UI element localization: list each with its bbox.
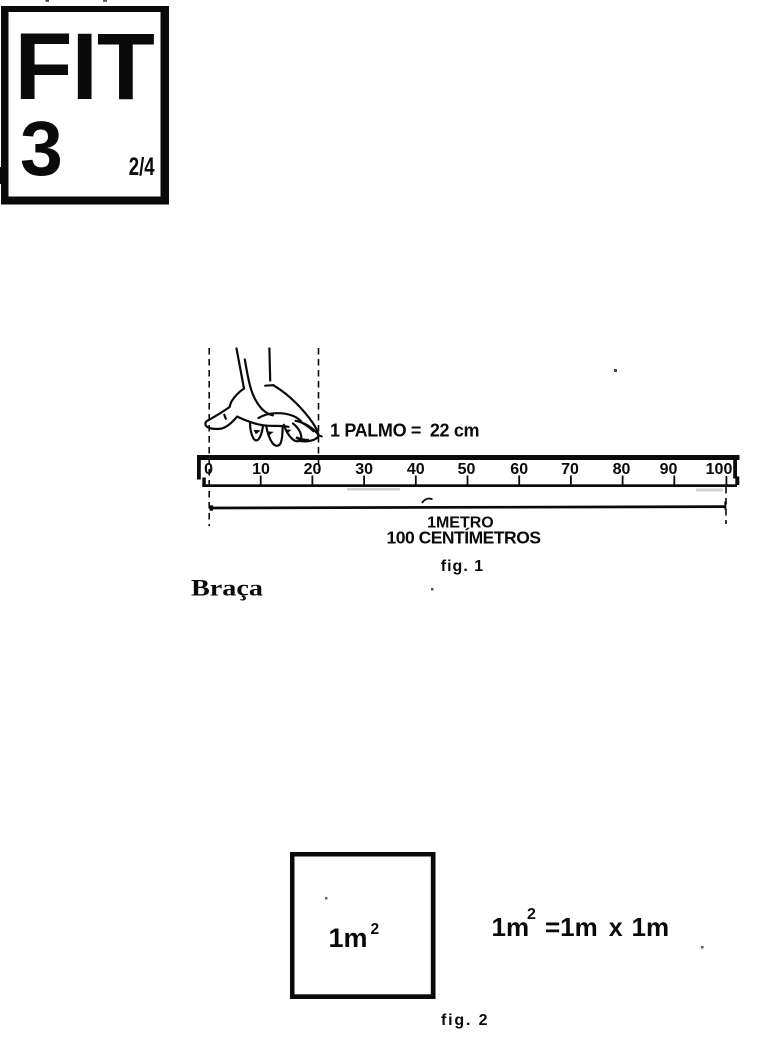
svg-text:70: 70: [561, 461, 579, 478]
svg-text:1m: 1m: [492, 912, 530, 942]
svg-text:2/4: 2/4: [129, 153, 155, 181]
svg-text:1 PALMO = 22 cm: 1 PALMO = 22 cm: [330, 421, 480, 441]
svg-text:40: 40: [407, 461, 425, 478]
svg-text:80: 80: [613, 461, 631, 478]
svg-text:fig. 1: fig. 1: [441, 558, 483, 575]
svg-text:90: 90: [660, 461, 678, 478]
svg-text:=1m: =1m: [545, 912, 598, 942]
svg-text:100: 100: [706, 461, 733, 478]
svg-text:Braça: Braça: [191, 576, 264, 601]
svg-text:20: 20: [304, 461, 322, 478]
svg-text:100 CENTÍMETROS: 100 CENTÍMETROS: [387, 527, 542, 548]
svg-text:fig. 2: fig. 2: [441, 1012, 488, 1029]
svg-text:1m: 1m: [632, 912, 670, 942]
svg-text:FIT: FIT: [15, 14, 155, 120]
svg-text:50: 50: [458, 461, 476, 478]
svg-text:2: 2: [527, 906, 536, 923]
svg-text:x: x: [609, 914, 623, 942]
svg-text:1m: 1m: [329, 923, 368, 953]
svg-text:60: 60: [510, 461, 528, 478]
svg-text:2: 2: [371, 921, 380, 938]
svg-text:30: 30: [355, 461, 373, 478]
svg-text:0: 0: [204, 461, 213, 478]
svg-text:10: 10: [252, 461, 270, 478]
svg-text:3: 3: [20, 106, 63, 192]
